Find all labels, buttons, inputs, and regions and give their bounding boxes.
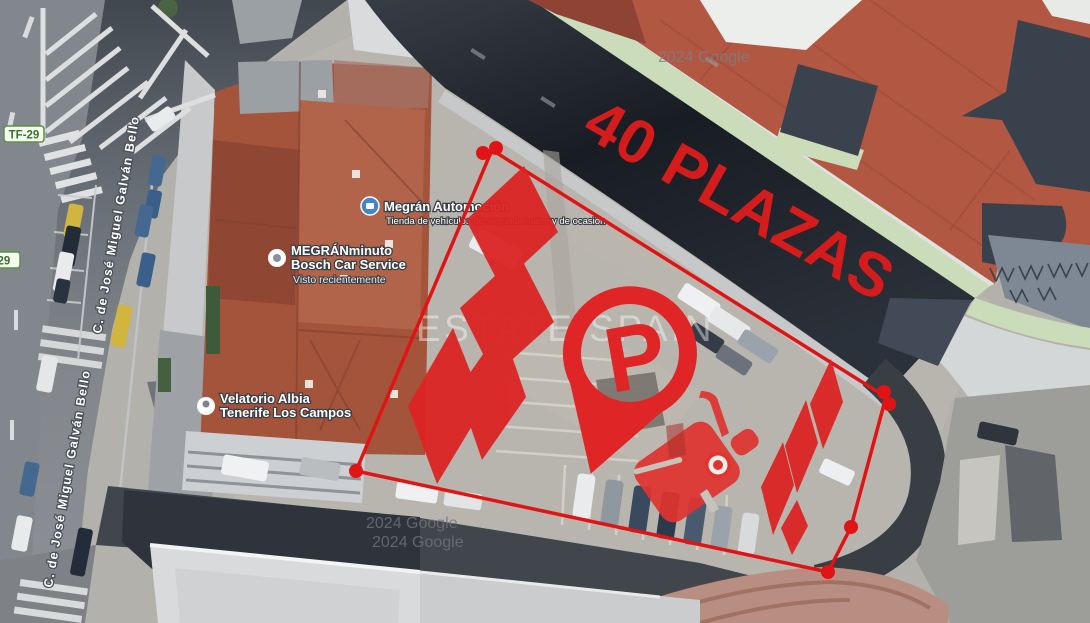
svg-text:2024 Google: 2024 Google (366, 515, 458, 532)
svg-text:TF-29: TF-29 (9, 130, 40, 142)
svg-text:Visto recientemente: Visto recientemente (293, 274, 386, 286)
svg-text:Bosch Car Service: Bosch Car Service (291, 257, 406, 272)
svg-text:Tenerife Los Campos: Tenerife Los Campos (220, 405, 351, 420)
svg-text:-29: -29 (0, 256, 10, 268)
svg-text:MEGRÁNminuto: MEGRÁNminuto (291, 243, 392, 258)
svg-text:Velatorio Albia: Velatorio Albia (220, 391, 311, 406)
svg-text:2024 Google: 2024 Google (372, 534, 464, 551)
svg-text:2024 Google: 2024 Google (658, 49, 750, 66)
